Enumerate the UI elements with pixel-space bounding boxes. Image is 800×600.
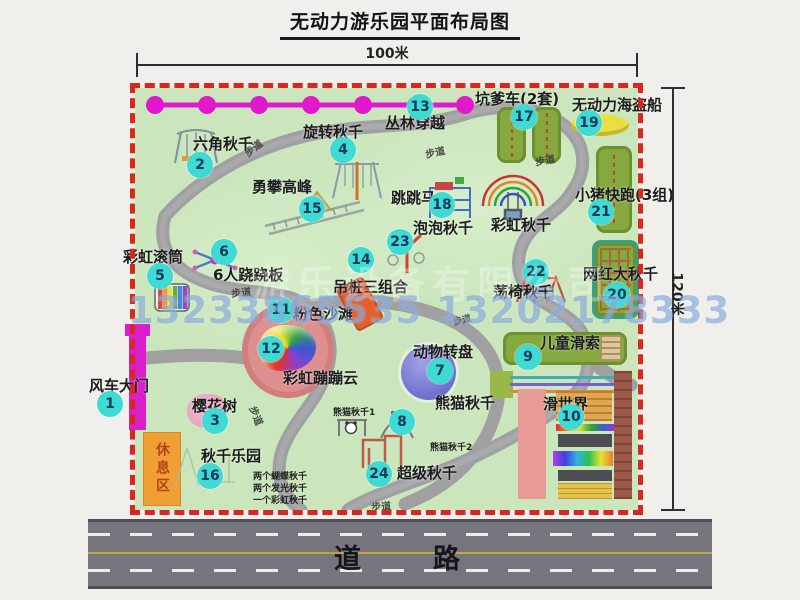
road: 道 路 xyxy=(88,519,712,589)
attraction-sublabel-panda-swing-1: 熊猫秋千1 xyxy=(333,405,375,418)
attraction-badge-animal-disc: 7 xyxy=(427,358,453,384)
dimension-tick-right-top xyxy=(661,87,685,89)
attraction-label-rotate-swing: 旋转秋千 xyxy=(303,121,363,142)
attraction-label-rainbow-cloud: 彩虹蹦蹦云 xyxy=(283,367,358,388)
attraction-badge-swing-park: 16 xyxy=(197,463,223,489)
dimension-width-label: 100米 xyxy=(137,43,637,63)
attraction-label-seesaw-6p: 6人跷跷板 xyxy=(213,264,283,285)
attraction-badge-super-swing: 24 xyxy=(366,461,392,487)
attraction-badge-climb-peak: 15 xyxy=(299,196,325,222)
walkway-label-4: 步道 xyxy=(230,283,251,300)
attraction-label-big-swing: 网红大秋千 xyxy=(583,263,658,284)
attraction-badge-windmill-gate: 1 xyxy=(97,391,123,417)
attraction-badge-bubble-swing: 23 xyxy=(387,229,413,255)
attraction-label-piggy-run: 小猪快跑(3组) xyxy=(575,184,674,205)
attraction-badge-jungle-cross: 13 xyxy=(407,94,433,120)
attraction-label-chair-swing: 荡椅秋千 xyxy=(493,281,553,302)
attraction-label-rainbow-swing: 彩虹秋千 xyxy=(491,214,551,235)
attraction-badge-rotate-swing: 4 xyxy=(330,137,356,163)
attraction-label-panda-swing: 熊猫秋千 xyxy=(435,392,495,413)
attraction-label-kids-zipline: 儿童滑索 xyxy=(540,332,600,353)
attraction-badge-slide-world: 10 xyxy=(558,404,584,430)
dimension-line-top xyxy=(137,64,637,66)
attraction-label-windmill-gate: 风车大门 xyxy=(89,375,149,396)
attraction-badge-kids-zipline: 9 xyxy=(515,344,541,370)
attraction-badge-pink-beach: 11 xyxy=(268,297,294,323)
attraction-badge-rainbow-cloud: 12 xyxy=(258,336,284,362)
road-label: 道 路 xyxy=(88,537,712,576)
attraction-label-pink-beach: 粉色沙滩 xyxy=(293,303,353,324)
attraction-badge-cherry-tree: 3 xyxy=(202,408,228,434)
attraction-badge-hex-swing: 2 xyxy=(187,152,213,178)
attraction-badge-pirate-ship: 19 xyxy=(576,110,602,136)
attraction-label-bubble-swing: 泡泡秋千 xyxy=(413,217,473,238)
attraction-badge-piggy-run: 21 xyxy=(588,199,614,225)
attraction-badge-rainbow-roller: 5 xyxy=(147,263,173,289)
attraction-badge-chair-swing: 22 xyxy=(523,259,549,285)
attraction-badge-hang-piles: 14 xyxy=(348,247,374,273)
attraction-badge-jump-horse: 18 xyxy=(429,192,455,218)
page-title: 无动力游乐园平面布局图 xyxy=(0,7,800,40)
road-lane-line-top xyxy=(88,533,712,536)
attraction-badge-big-swing: 20 xyxy=(604,282,630,308)
rotate-swing-icon xyxy=(333,162,381,200)
attraction-label-super-swing: 超级秋千 xyxy=(397,462,457,483)
attraction-badge-seesaw-6p: 6 xyxy=(211,239,237,265)
attraction-badge-panda-swing: 8 xyxy=(389,409,415,435)
attraction-badge-troll-cart: 17 xyxy=(511,104,537,130)
attraction-label-hex-swing: 六角秋千 xyxy=(193,133,253,154)
attraction-sublabel-panda-swing-2: 熊猫秋千2 xyxy=(430,440,472,453)
walkway-label-7: 步道 xyxy=(371,497,392,513)
attraction-sublabel-swing-park-3: 一个彩虹秋千 xyxy=(253,493,307,506)
dimension-height-label: 120米 xyxy=(668,272,688,315)
rainbow-swing-icon xyxy=(483,176,543,219)
attraction-label-climb-peak: 勇攀高峰 xyxy=(252,176,312,197)
park-map: 休息区 xyxy=(135,88,638,510)
windmill-gate-cap xyxy=(125,324,150,336)
attraction-label-hang-piles: 吊桩三组合 xyxy=(333,276,408,297)
dimension-tick-right-bottom xyxy=(661,509,685,511)
